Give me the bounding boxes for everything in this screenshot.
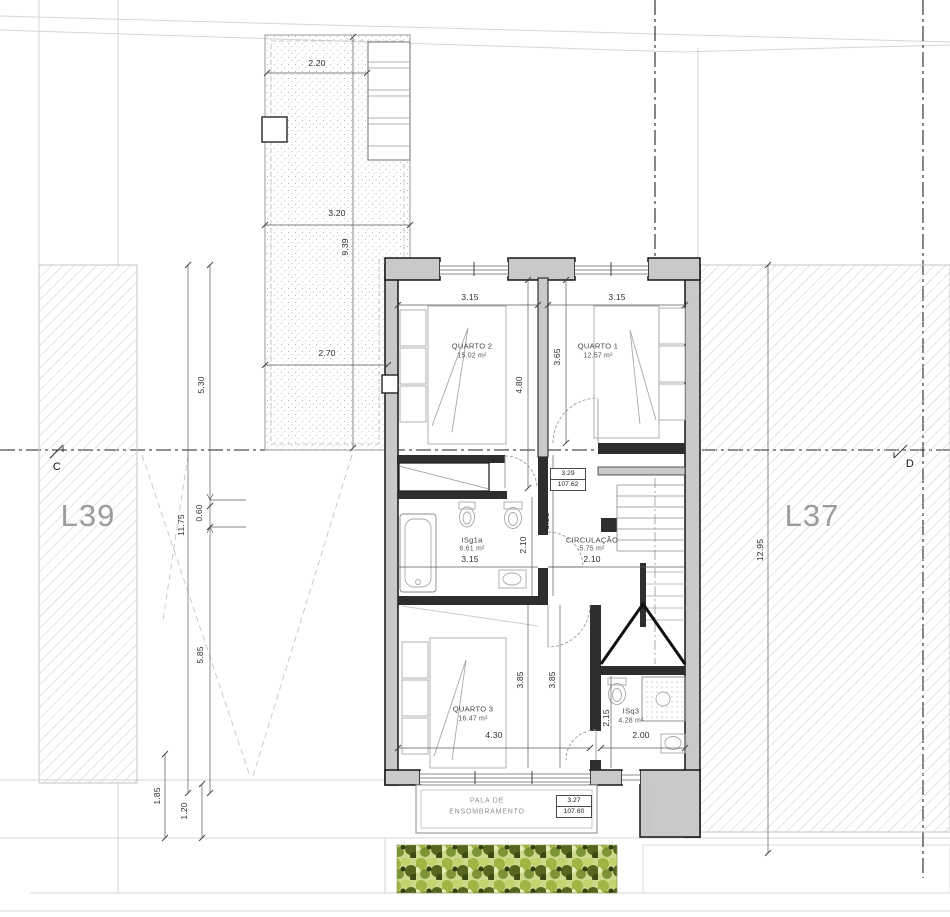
sink-isq3: [661, 734, 685, 753]
dim-hall-depth: 3.25: [541, 512, 551, 529]
circulacao-name: CIRCULAÇÃO: [566, 536, 618, 545]
dim-quarto2-width: 3.15: [461, 292, 478, 302]
quarto1-bed: [594, 306, 685, 438]
quarto2-bed: [400, 306, 506, 444]
door-swings: [505, 398, 598, 760]
dim-terrace-height: 9.39: [340, 238, 350, 255]
dim-isg1a-depth: 2.10: [518, 536, 528, 553]
toilet-isg1a: [504, 502, 522, 529]
isq3-window: [622, 771, 640, 784]
dim-isg1a-width: 3.15: [461, 554, 478, 564]
isq3-name: ISq3: [623, 707, 640, 716]
quarto1-area: 12.57 m²: [583, 353, 612, 360]
dim-right-total: 12.95: [755, 539, 765, 561]
dim-quarto1-width: 3.15: [608, 292, 625, 302]
dim-hall-width: 2.10: [583, 554, 600, 564]
dim-terrace-top: 2.20: [308, 58, 325, 68]
bidet: [459, 502, 475, 527]
dim-left-step: 0.60: [194, 504, 204, 521]
quarto1-name: QUARTO 1: [578, 342, 618, 351]
quarto1-door: [553, 398, 598, 443]
dim-quarto3-depth-left: 3.85: [515, 671, 525, 688]
level-upper-rel: 3.29: [551, 469, 585, 479]
dim-quarto3-width: 4.30: [485, 730, 502, 740]
left-wall-window: [382, 375, 398, 393]
terrace-box: [262, 117, 287, 142]
quarto2-name: QUARTO 2: [452, 342, 492, 351]
quarto1-window: [575, 262, 648, 276]
quarto3-area: 16.47 m²: [458, 716, 487, 723]
dim-isq3-width: 2.00: [632, 730, 649, 740]
pala-label-line2: ENSOMBRAMENTO: [449, 809, 525, 816]
floor-plan-page: 2.20 3.20 9.39 2.70 5.30 0.60 11.75 5.85…: [0, 0, 950, 917]
isg1a-name: ISg1a: [461, 536, 482, 545]
quarto2-door: [505, 456, 537, 488]
vegetation-strip: [397, 845, 617, 893]
pala-label-line1: PALA DE: [470, 798, 504, 805]
isg1a-area: 6.61 m²: [459, 546, 484, 553]
isq3-door: [566, 730, 596, 760]
level-pala-rel: 3.27: [557, 796, 591, 806]
quarto3-bed: [402, 638, 506, 768]
shower-isq3: [642, 677, 685, 721]
section-marker-c: C: [53, 461, 61, 473]
quarto2-closet: [399, 463, 489, 491]
neighbour-roof-lines: [142, 455, 352, 776]
dim-quarto3-depth-right: 3.85: [547, 671, 557, 688]
dim-left-lower: 5.85: [195, 646, 205, 663]
level-upper-abs: 107.62: [551, 479, 585, 490]
quarto2-area: 15.02 m²: [457, 353, 486, 360]
dim-left-upper: 5.30: [196, 376, 206, 393]
dim-quarto1-depth: 3.65: [552, 348, 562, 365]
dim-quarto2-depth: 4.80: [514, 376, 524, 393]
dim-left-bottom-outer: 1.85: [152, 787, 162, 804]
isq3-area: 4.28 m²: [618, 718, 643, 725]
level-marker-pala: 3.27 107.60: [556, 795, 592, 818]
sink-isg1a: [499, 570, 526, 588]
quarto2-window: [440, 262, 508, 276]
quarto3-name: QUARTO 3: [453, 705, 493, 714]
dim-terrace-mid: 3.20: [328, 208, 345, 218]
bathtub: [400, 514, 436, 592]
dim-terrace-bottom: 2.70: [318, 348, 335, 358]
quarto3-door: [548, 605, 590, 647]
terrace-stair-ladder: [368, 42, 410, 160]
dim-left-bottom-inner: 1.20: [179, 802, 189, 819]
dim-isq3-depth: 2.15: [601, 709, 611, 726]
level-marker-upper: 3.29 107.62: [550, 468, 586, 491]
floor-plan-drawing: [0, 0, 950, 917]
circulacao-area: 5.75 m²: [579, 546, 604, 553]
quarto3-window: [420, 771, 590, 784]
section-marker-d: D: [906, 458, 914, 470]
lot-label-l37: L37: [785, 498, 840, 534]
lot-label-l39: L39: [61, 498, 116, 534]
dim-left-total: 11.75: [176, 514, 186, 536]
lot-l37-hatch: [700, 265, 950, 832]
level-pala-abs: 107.60: [557, 806, 591, 817]
